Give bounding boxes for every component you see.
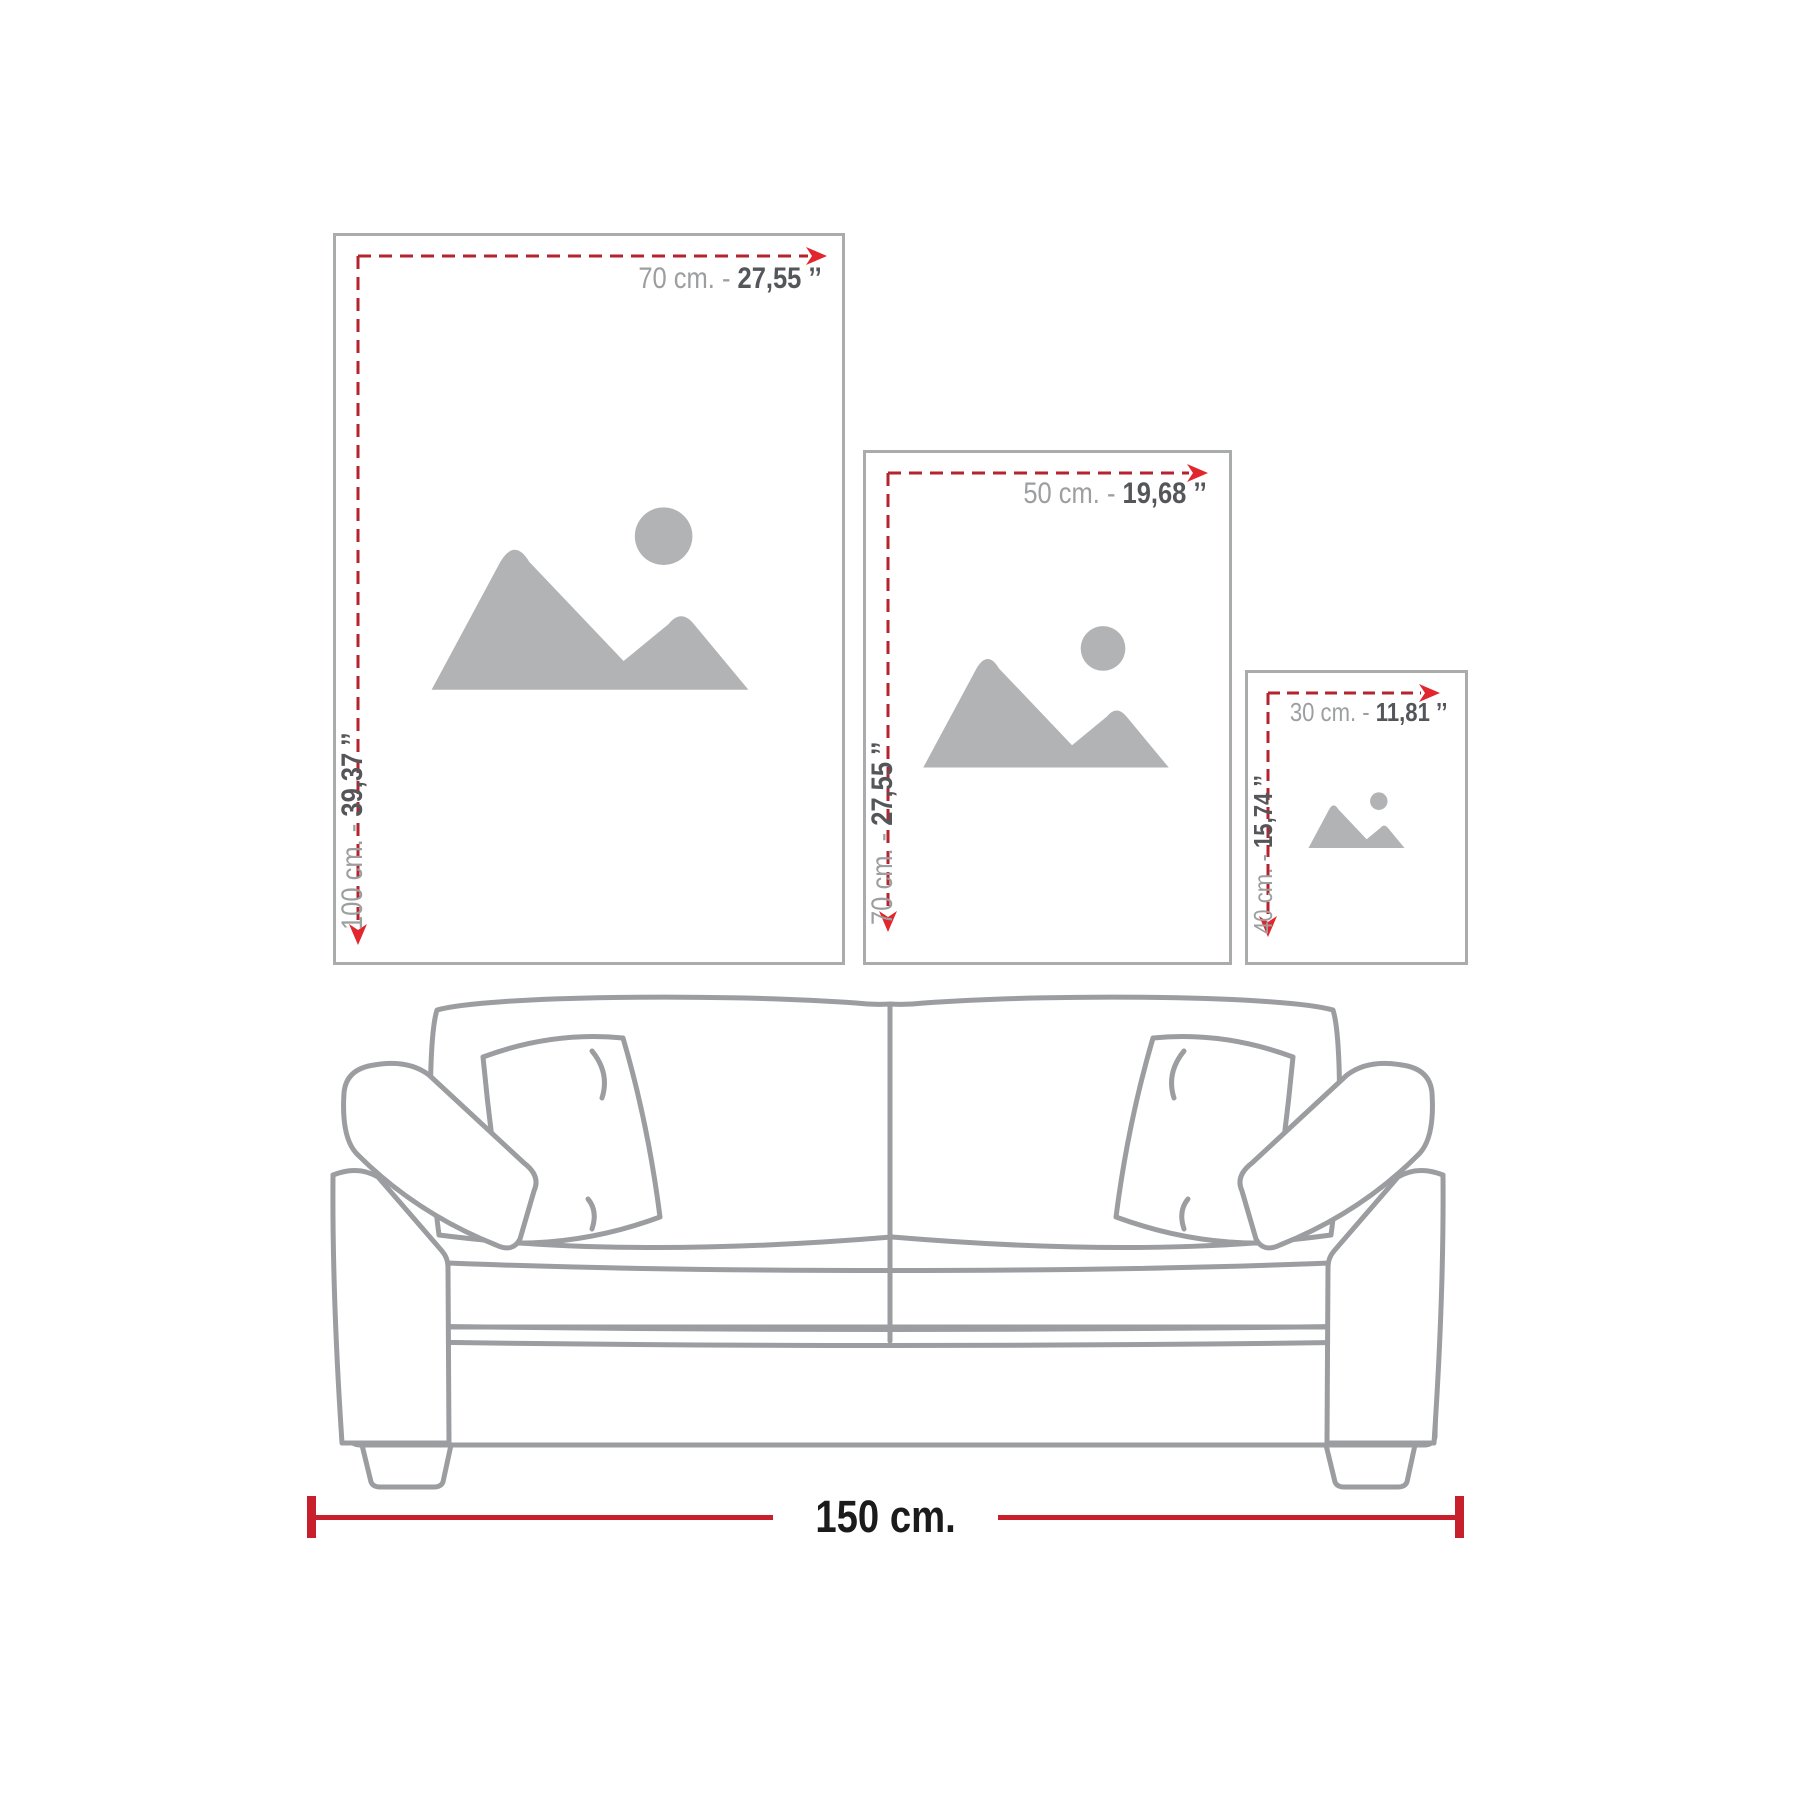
measure-endcap-right <box>1455 1496 1464 1538</box>
measure-line-right <box>998 1515 1455 1520</box>
frame-medium-height-label: 70 cm. - 27,55 ’’ <box>868 742 898 925</box>
sofa-foot-left <box>362 1445 451 1487</box>
frame-medium-width-label: 50 cm. - 19,68 ’’ <box>1024 479 1207 509</box>
sofa-skirt <box>348 1341 1437 1445</box>
size-guide-page: 70 cm. - 27,55 ’’ 100 cm. - 39,37 ’’ 50 … <box>0 0 1800 1800</box>
measure-line-left <box>316 1515 773 1520</box>
frame-small: 30 cm. - 11,81 ’’ 40 cm. - 15,74 ’’ <box>1245 670 1468 965</box>
sofa-foot-right <box>1326 1445 1415 1487</box>
frame-medium: 50 cm. - 19,68 ’’ 70 cm. - 27,55 ’’ <box>863 450 1232 965</box>
frame-small-width-label: 30 cm. - 11,81 ’’ <box>1289 699 1447 725</box>
measure-endcap-left <box>307 1496 316 1538</box>
frame-large-height-label: 100 cm. - 39,37 ’’ <box>338 732 368 930</box>
image-placeholder-icon <box>922 615 1170 770</box>
frame-large-width-label: 70 cm. - 27,55 ’’ <box>639 264 822 294</box>
image-placeholder-icon <box>430 493 750 693</box>
image-placeholder-icon <box>1308 788 1405 849</box>
sofa-width-label: 150 cm. <box>790 1496 981 1538</box>
sofa-width-measure: 150 cm. <box>307 1496 1464 1538</box>
frame-small-height-label: 40 cm. - 15,74 ’’ <box>1250 775 1276 934</box>
frame-large: 70 cm. - 27,55 ’’ 100 cm. - 39,37 ’’ <box>333 233 845 965</box>
sofa-illustration <box>296 988 1481 1498</box>
